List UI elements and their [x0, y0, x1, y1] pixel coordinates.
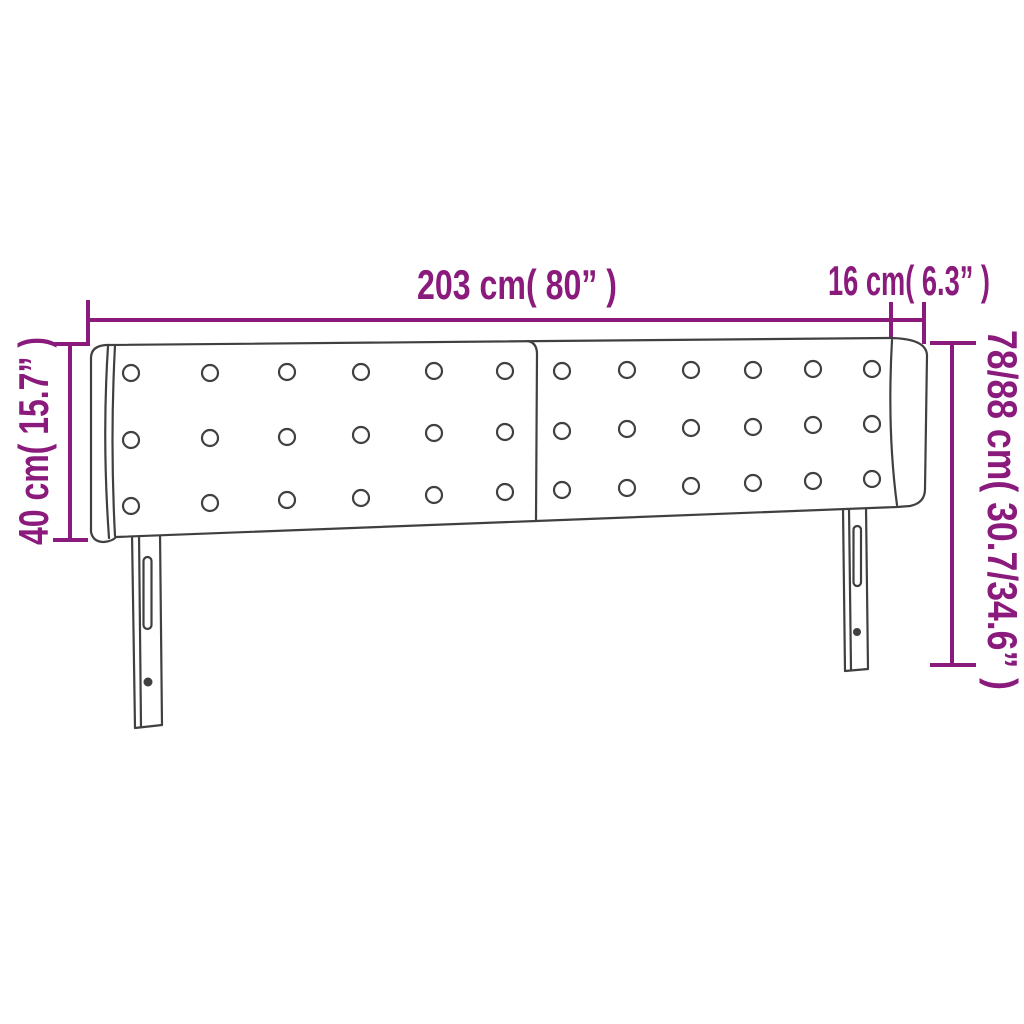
tufting-button [123, 432, 139, 448]
tufting-button [123, 365, 139, 381]
width-dimension-label: 203 cm( 80” ) [417, 261, 617, 308]
diagram-canvas: 203 cm( 80” ) 16 cm( 6.3” ) 40 cm( 15.7”… [0, 0, 1024, 1024]
tufting-button [202, 430, 218, 446]
left-leg-screw-hole [144, 678, 153, 687]
tufting-button [123, 498, 139, 514]
tufting-button [745, 475, 761, 491]
side-depth-dimension-label: 16 cm( 6.3” ) [828, 257, 990, 304]
headboard-drawing [91, 338, 927, 728]
tufting-button [683, 362, 699, 378]
tufting-button [353, 364, 369, 380]
tufting-button [683, 420, 699, 436]
total-height-dimension-label: 78/88 cm( 30.7/34.6” ) [979, 330, 1024, 690]
tufting-button [426, 487, 442, 503]
left-leg [132, 532, 162, 728]
panel-height-dimension-label: 40 cm( 15.7” ) [10, 337, 57, 545]
tufting-button [426, 363, 442, 379]
tufting-button [554, 363, 570, 379]
tufting-button [202, 495, 218, 511]
right-leg [843, 507, 868, 671]
tufting-button [745, 419, 761, 435]
tufting-button [745, 362, 761, 378]
tufting-button [554, 482, 570, 498]
tufting-button [353, 490, 369, 506]
tufting-button [805, 417, 821, 433]
headboard-dimension-diagram: 203 cm( 80” ) 16 cm( 6.3” ) 40 cm( 15.7”… [0, 0, 1024, 1024]
tufting-button [202, 365, 218, 381]
tufting-button [497, 424, 513, 440]
tufting-button [497, 363, 513, 379]
tufting-button [353, 427, 369, 443]
tufting-button [619, 421, 635, 437]
tufting-button [805, 473, 821, 489]
right-leg-body [843, 507, 868, 671]
right-leg-screw-hole [853, 628, 861, 636]
tufting-button [864, 361, 880, 377]
tufting-button [497, 484, 513, 500]
tufting-button [619, 362, 635, 378]
tufting-button [279, 364, 295, 380]
tufting-button [279, 429, 295, 445]
tufting-button [279, 492, 295, 508]
tufting-button [554, 423, 570, 439]
tufting-button [864, 471, 880, 487]
tufting-button [619, 480, 635, 496]
tufting-button [683, 478, 699, 494]
tufting-button [426, 425, 442, 441]
tufting-button [805, 361, 821, 377]
tufting-button [864, 416, 880, 432]
